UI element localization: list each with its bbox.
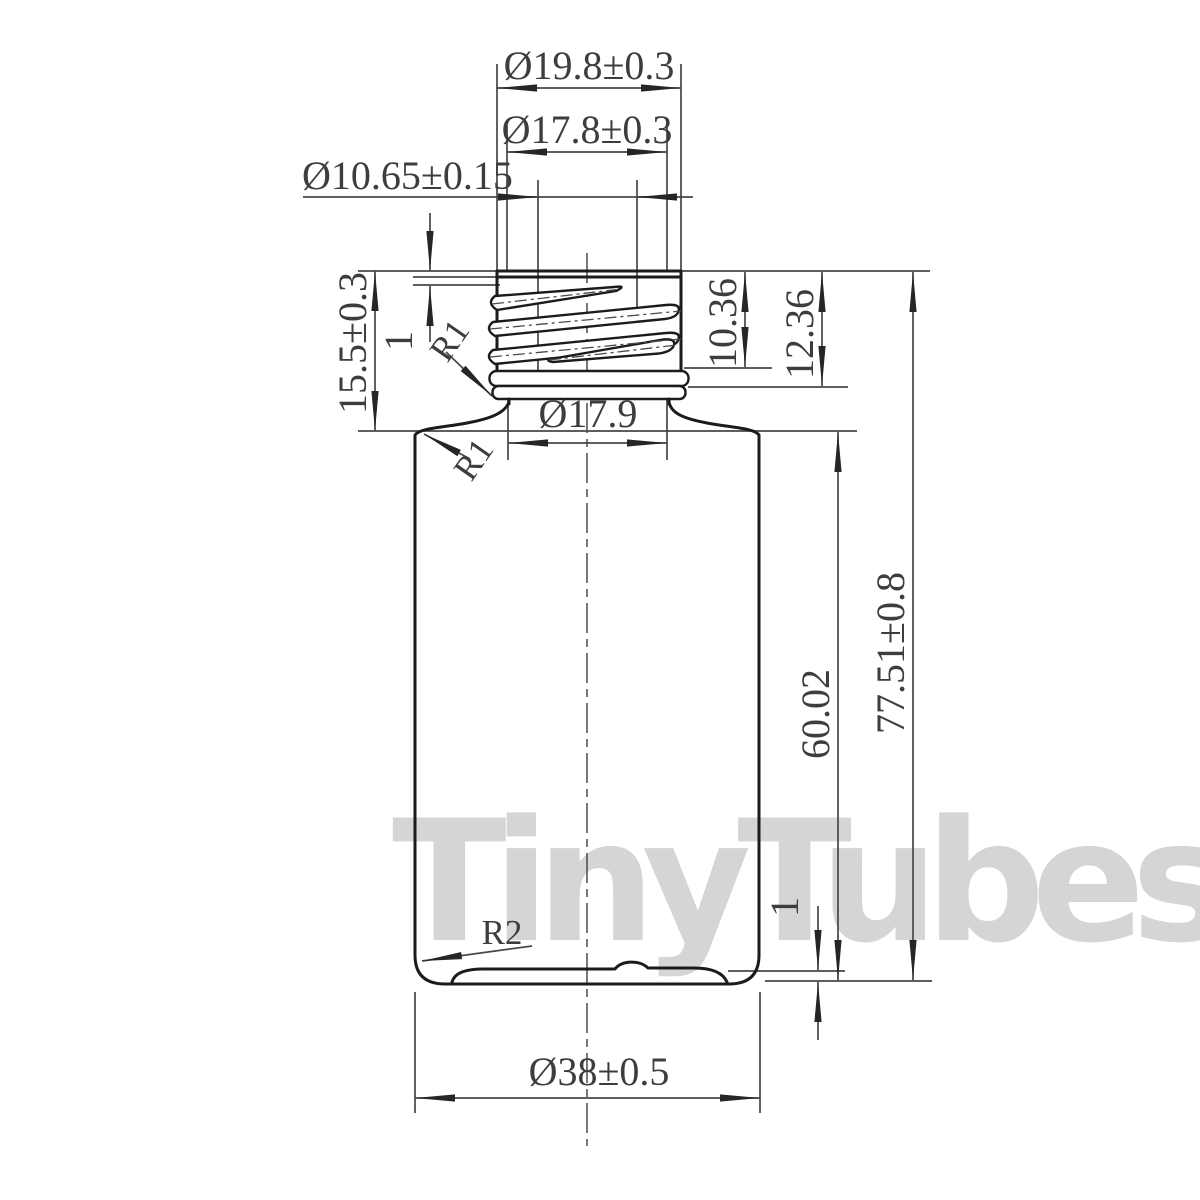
- dim-label-total-height: 77.51±0.8: [868, 572, 913, 734]
- technical-drawing-page: TinyTubes: [0, 0, 1200, 1200]
- dim-label-neck-lower-dia: Ø17.9: [539, 391, 638, 436]
- neck-threads: [489, 287, 681, 365]
- base-inner-profile: [452, 962, 727, 982]
- radius-label-shoulder: R1: [446, 431, 501, 487]
- dim-label-bead-height: 12.36: [777, 289, 822, 379]
- dim-label-mouth-inner-dia: Ø10.65±0.15: [302, 153, 513, 198]
- dim-label-body-dia: Ø38±0.5: [529, 1049, 670, 1094]
- dimension-lines: [303, 88, 913, 1098]
- bottle-dimension-drawing: Ø19.8±0.3 Ø17.8±0.3 Ø10.65±0.15 15.5±0.3…: [0, 0, 1200, 1200]
- dim-label-thread-outer-dia: Ø17.8±0.3: [502, 107, 673, 152]
- dim-label-body-height: 60.02: [793, 669, 838, 759]
- extension-lines: [358, 64, 932, 1113]
- dim-label-neck-height: 15.5±0.3: [330, 272, 375, 414]
- dim-label-neck-outer-dia: Ø19.8±0.3: [504, 43, 675, 88]
- dim-label-rim-offset: 1: [376, 331, 421, 351]
- dim-label-base-inset: 1: [762, 897, 807, 917]
- radius-label-base: R2: [482, 913, 523, 952]
- dim-label-thread-length: 10.36: [700, 278, 745, 368]
- neck-bead-ring-upper: [490, 371, 689, 386]
- dimension-labels: Ø19.8±0.3 Ø17.8±0.3 Ø10.65±0.15 15.5±0.3…: [302, 43, 913, 1094]
